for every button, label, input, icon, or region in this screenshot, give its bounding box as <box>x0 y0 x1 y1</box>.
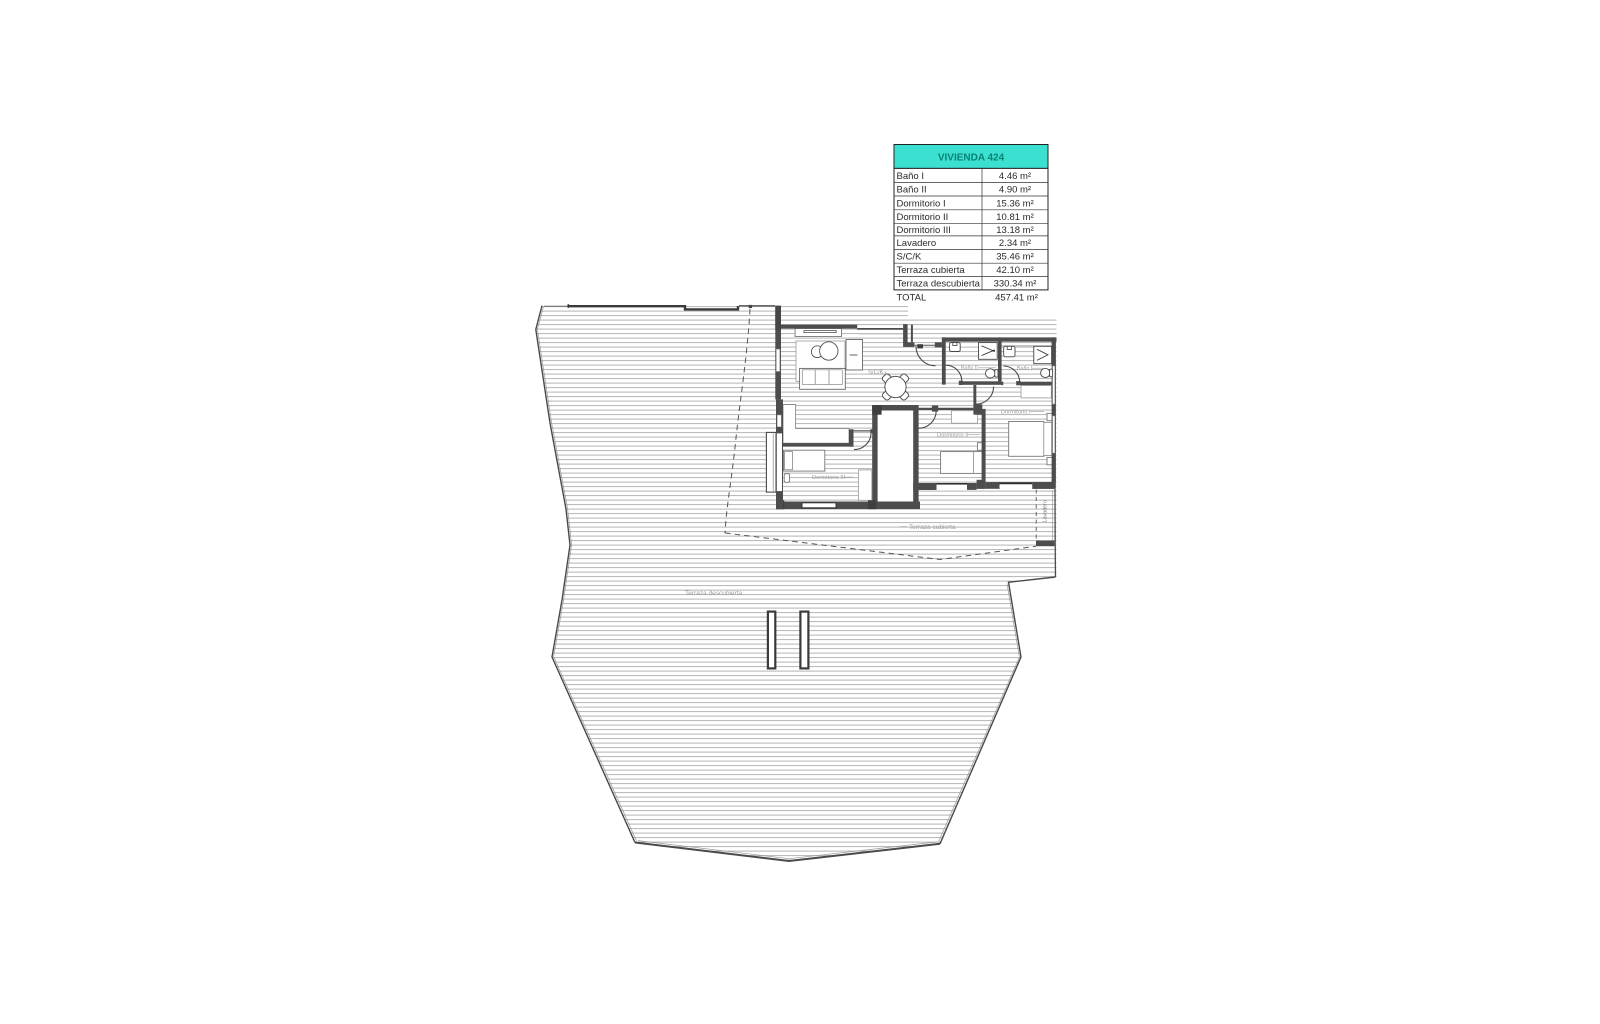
svg-text:Terraza cubierta: Terraza cubierta <box>909 524 956 531</box>
svg-text:Terraza descubierta: Terraza descubierta <box>897 279 981 290</box>
svg-text:35.46 m²: 35.46 m² <box>996 252 1034 263</box>
svg-text:457.41 m²: 457.41 m² <box>995 292 1038 303</box>
svg-text:Lavadero: Lavadero <box>897 238 937 249</box>
svg-text:Dormitorio I: Dormitorio I <box>1001 410 1031 416</box>
svg-text:15.36 m²: 15.36 m² <box>996 198 1034 209</box>
svg-text:4.90 m²: 4.90 m² <box>999 185 1031 196</box>
svg-text:Dormitorio II: Dormitorio II <box>897 212 949 223</box>
svg-text:TOTAL: TOTAL <box>897 292 927 303</box>
svg-text:Dormitorio II: Dormitorio II <box>937 432 969 438</box>
svg-text:Dormitorio III: Dormitorio III <box>812 475 846 481</box>
svg-text:Terraza cubierta: Terraza cubierta <box>897 265 966 276</box>
svg-text:Baño I: Baño I <box>897 171 924 182</box>
svg-text:330.34 m²: 330.34 m² <box>994 279 1037 290</box>
svg-text:2.34 m²: 2.34 m² <box>999 238 1031 249</box>
svg-text:42.10 m²: 42.10 m² <box>996 265 1034 276</box>
svg-text:S/C/K: S/C/K <box>897 252 922 263</box>
svg-text:Lavadero: Lavadero <box>1043 500 1049 522</box>
svg-text:Dormitorio I: Dormitorio I <box>897 198 946 209</box>
svg-text:Dormitorio III: Dormitorio III <box>897 225 951 236</box>
svg-text:Baño I: Baño I <box>1017 366 1032 372</box>
svg-text:4.46 m²: 4.46 m² <box>999 171 1031 182</box>
svg-text:Baño II: Baño II <box>897 185 927 196</box>
svg-text:13.18 m²: 13.18 m² <box>996 225 1034 236</box>
svg-text:VIVIENDA 424: VIVIENDA 424 <box>938 152 1005 163</box>
svg-text:10.81 m²: 10.81 m² <box>996 212 1034 223</box>
svg-text:Terraza descubierta: Terraza descubierta <box>685 590 742 597</box>
svg-text:S/C/K: S/C/K <box>868 370 884 376</box>
svg-text:Baño II: Baño II <box>961 366 978 372</box>
